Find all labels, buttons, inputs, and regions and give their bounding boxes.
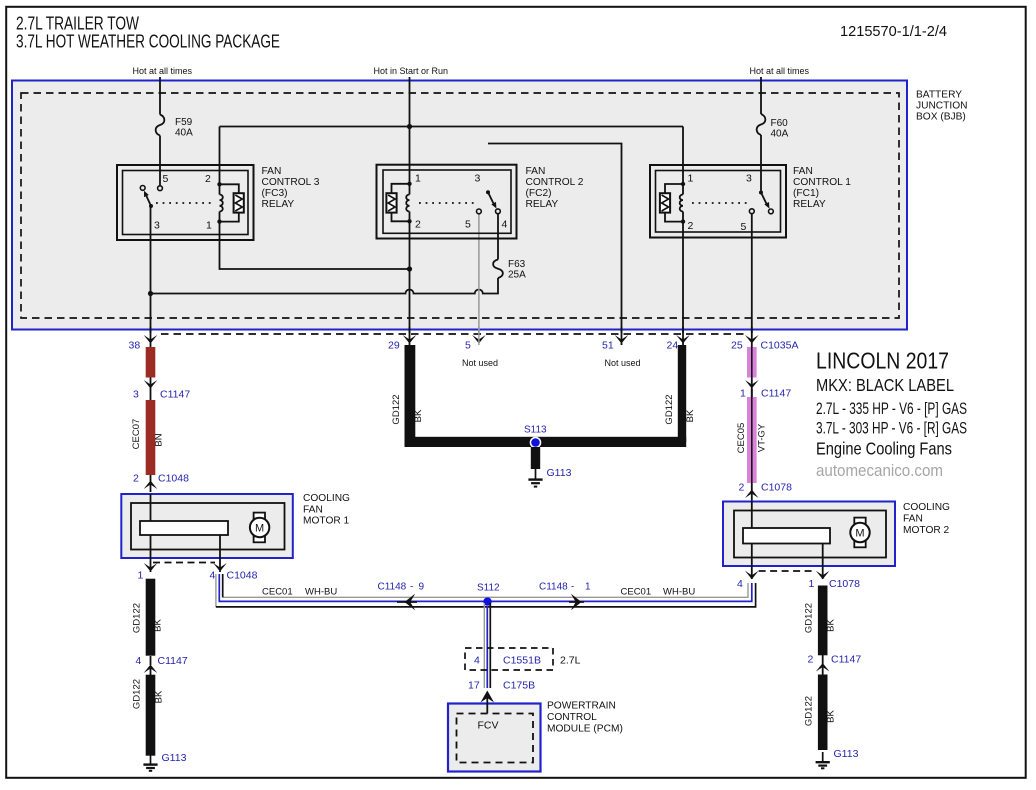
svg-text:2: 2 [808, 654, 814, 666]
svg-text:29: 29 [388, 340, 400, 352]
svg-text:Hot at all times: Hot at all times [750, 66, 810, 76]
svg-text:C175B: C175B [503, 680, 535, 692]
svg-text:CEC01: CEC01 [262, 587, 293, 598]
svg-text:4: 4 [474, 655, 480, 667]
svg-text:40A: 40A [771, 129, 789, 140]
svg-text:G113: G113 [162, 752, 187, 764]
svg-text:GD122: GD122 [132, 679, 143, 709]
svg-text:automecanico.com: automecanico.com [816, 461, 943, 480]
svg-text:C1147: C1147 [158, 655, 188, 667]
svg-text:1: 1 [138, 570, 144, 582]
svg-text:C1147: C1147 [831, 654, 861, 666]
svg-text:F60: F60 [771, 118, 789, 129]
svg-text:4: 4 [502, 219, 508, 231]
svg-text:4: 4 [136, 655, 142, 667]
svg-text:G113: G113 [547, 467, 572, 479]
svg-text:3.7L HOT WEATHER COOLING PACKA: 3.7L HOT WEATHER COOLING PACKAGE [16, 32, 280, 52]
svg-text:3: 3 [746, 173, 752, 185]
svg-text:BK: BK [826, 619, 837, 632]
svg-text:M: M [255, 523, 264, 535]
svg-text:CONTROL: CONTROL [547, 712, 597, 723]
svg-text:51: 51 [602, 340, 614, 352]
svg-text:(FC3): (FC3) [262, 188, 288, 199]
svg-text:24: 24 [667, 340, 679, 352]
svg-text:CONTROL 2: CONTROL 2 [526, 177, 584, 188]
svg-text:5: 5 [741, 221, 747, 233]
svg-text:CONTROL 3: CONTROL 3 [262, 177, 320, 188]
svg-text:BN: BN [154, 433, 165, 446]
svg-text:2: 2 [133, 473, 139, 485]
svg-text:COOLING: COOLING [303, 493, 350, 504]
svg-text:F63: F63 [508, 259, 526, 270]
svg-text:WH-BU: WH-BU [305, 587, 337, 598]
svg-text:BK: BK [413, 409, 424, 422]
svg-text:FAN: FAN [262, 166, 282, 177]
svg-text:COOLING: COOLING [903, 502, 950, 513]
svg-text:C1035A: C1035A [761, 340, 799, 352]
svg-text:CEC07: CEC07 [131, 419, 142, 450]
svg-text:5: 5 [163, 173, 169, 185]
svg-text:3.7L - 303 HP - V6 - [R] GAS: 3.7L - 303 HP - V6 - [R] GAS [816, 419, 967, 438]
svg-text:BK: BK [685, 409, 696, 422]
svg-text:MOTOR 1: MOTOR 1 [303, 516, 350, 527]
svg-text:(FC1): (FC1) [793, 188, 819, 199]
svg-text:JUNCTION: JUNCTION [916, 101, 968, 112]
svg-text:MOTOR 2: MOTOR 2 [903, 525, 950, 536]
svg-text:1: 1 [585, 582, 591, 593]
svg-text:RELAY: RELAY [262, 199, 295, 210]
svg-text:4: 4 [210, 570, 216, 582]
svg-text:9: 9 [419, 582, 425, 593]
svg-text:WH-BU: WH-BU [663, 587, 695, 598]
svg-text:2: 2 [415, 219, 421, 231]
svg-text:1215570-1/1-2/4: 1215570-1/1-2/4 [840, 24, 947, 40]
svg-text:CEC05: CEC05 [736, 423, 747, 454]
svg-text:RELAY: RELAY [526, 199, 559, 210]
svg-text:CEC01: CEC01 [621, 587, 652, 598]
svg-text:S112: S112 [477, 583, 500, 594]
svg-text:40A: 40A [175, 128, 193, 139]
svg-text:C1048: C1048 [227, 570, 258, 582]
svg-text:C1048: C1048 [158, 473, 189, 485]
svg-text:3: 3 [133, 389, 139, 401]
svg-text:RELAY: RELAY [793, 199, 826, 210]
svg-text:3: 3 [475, 173, 481, 185]
svg-text:G113: G113 [834, 748, 859, 760]
svg-text:FAN: FAN [526, 166, 546, 177]
svg-text:FAN: FAN [793, 166, 813, 177]
svg-text:BK: BK [153, 619, 164, 632]
svg-text:GD122: GD122 [804, 696, 815, 726]
svg-text:FAN: FAN [903, 514, 923, 525]
svg-text:5: 5 [465, 340, 471, 352]
svg-text:Hot in Start or Run: Hot in Start or Run [374, 66, 449, 76]
svg-text:M: M [855, 528, 864, 540]
svg-text:2: 2 [205, 173, 211, 185]
svg-text:1: 1 [740, 388, 746, 400]
svg-text:FAN: FAN [303, 505, 323, 516]
svg-text:LINCOLN 2017: LINCOLN 2017 [816, 348, 949, 374]
svg-text:2: 2 [739, 482, 745, 494]
svg-text:Engine Cooling Fans: Engine Cooling Fans [816, 439, 952, 459]
svg-text:BOX (BJB): BOX (BJB) [916, 112, 966, 123]
svg-text:Hot at all times: Hot at all times [133, 66, 193, 76]
svg-text:CONTROL 1: CONTROL 1 [793, 177, 851, 188]
svg-text:BK: BK [154, 690, 165, 703]
svg-text:GD122: GD122 [132, 603, 143, 633]
svg-text:2.7L TRAILER TOW: 2.7L TRAILER TOW [16, 14, 139, 34]
svg-text:2.7L: 2.7L [560, 655, 581, 667]
svg-text:C1148: C1148 [378, 582, 407, 593]
svg-text:(FC2): (FC2) [526, 188, 552, 199]
svg-text:25A: 25A [508, 270, 526, 281]
svg-text:3: 3 [154, 220, 160, 232]
svg-text:25: 25 [731, 340, 743, 352]
svg-text:C1147: C1147 [761, 388, 791, 400]
svg-text:C1148: C1148 [539, 582, 568, 593]
svg-text:F59: F59 [175, 117, 193, 128]
svg-text:Not used: Not used [462, 358, 498, 368]
svg-text:-: - [410, 582, 413, 593]
svg-text:Not used: Not used [605, 358, 641, 368]
svg-text:4: 4 [737, 578, 743, 590]
svg-text:GD122: GD122 [664, 394, 675, 424]
svg-text:VT-GY: VT-GY [757, 423, 768, 452]
svg-text:C1078: C1078 [829, 578, 860, 590]
svg-text:17: 17 [468, 680, 480, 692]
svg-text:1: 1 [688, 173, 694, 185]
svg-text:C1147: C1147 [160, 389, 190, 401]
svg-text:C1078: C1078 [761, 482, 792, 494]
svg-text:1: 1 [206, 220, 212, 232]
svg-text:5: 5 [465, 219, 471, 231]
svg-text:2.7L - 335 HP - V6 - [P] GAS: 2.7L - 335 HP - V6 - [P] GAS [816, 399, 967, 418]
svg-text:FCV: FCV [478, 720, 499, 732]
svg-text:BK: BK [826, 710, 837, 723]
svg-text:S113: S113 [524, 425, 547, 436]
svg-text:38: 38 [129, 340, 141, 352]
svg-text:C1551B: C1551B [503, 655, 541, 667]
svg-text:1: 1 [809, 578, 815, 590]
svg-text:MKX: BLACK LABEL: MKX: BLACK LABEL [816, 375, 954, 395]
svg-text:-: - [571, 582, 574, 593]
svg-text:GD122: GD122 [391, 394, 402, 424]
svg-text:BATTERY: BATTERY [916, 90, 962, 101]
svg-text:GD122: GD122 [804, 603, 815, 633]
svg-text:MODULE (PCM): MODULE (PCM) [547, 724, 623, 735]
svg-text:1: 1 [415, 173, 421, 185]
svg-text:2: 2 [688, 220, 694, 232]
svg-text:POWERTRAIN: POWERTRAIN [547, 701, 616, 712]
